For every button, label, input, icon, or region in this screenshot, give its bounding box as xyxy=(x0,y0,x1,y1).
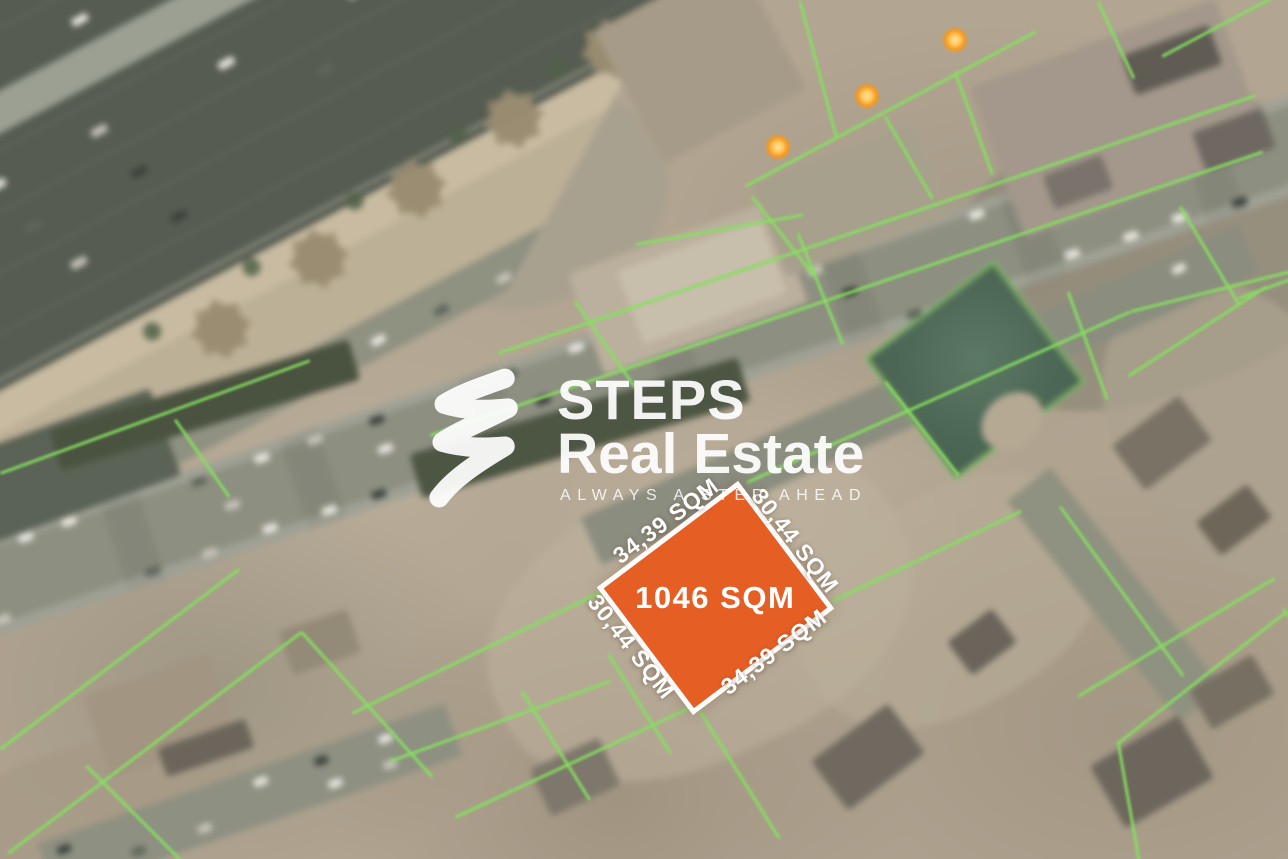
location-dot-marker xyxy=(854,83,880,109)
location-dot-marker xyxy=(942,27,968,53)
listing-map-screenshot: 1046 SQM 34,39 SQM 30,44 SQM 30,44 SQM 3… xyxy=(0,0,1288,859)
location-dot-marker xyxy=(765,134,791,160)
plot-area-label: 1046 SQM xyxy=(635,580,795,616)
markers-layer xyxy=(0,0,1288,859)
